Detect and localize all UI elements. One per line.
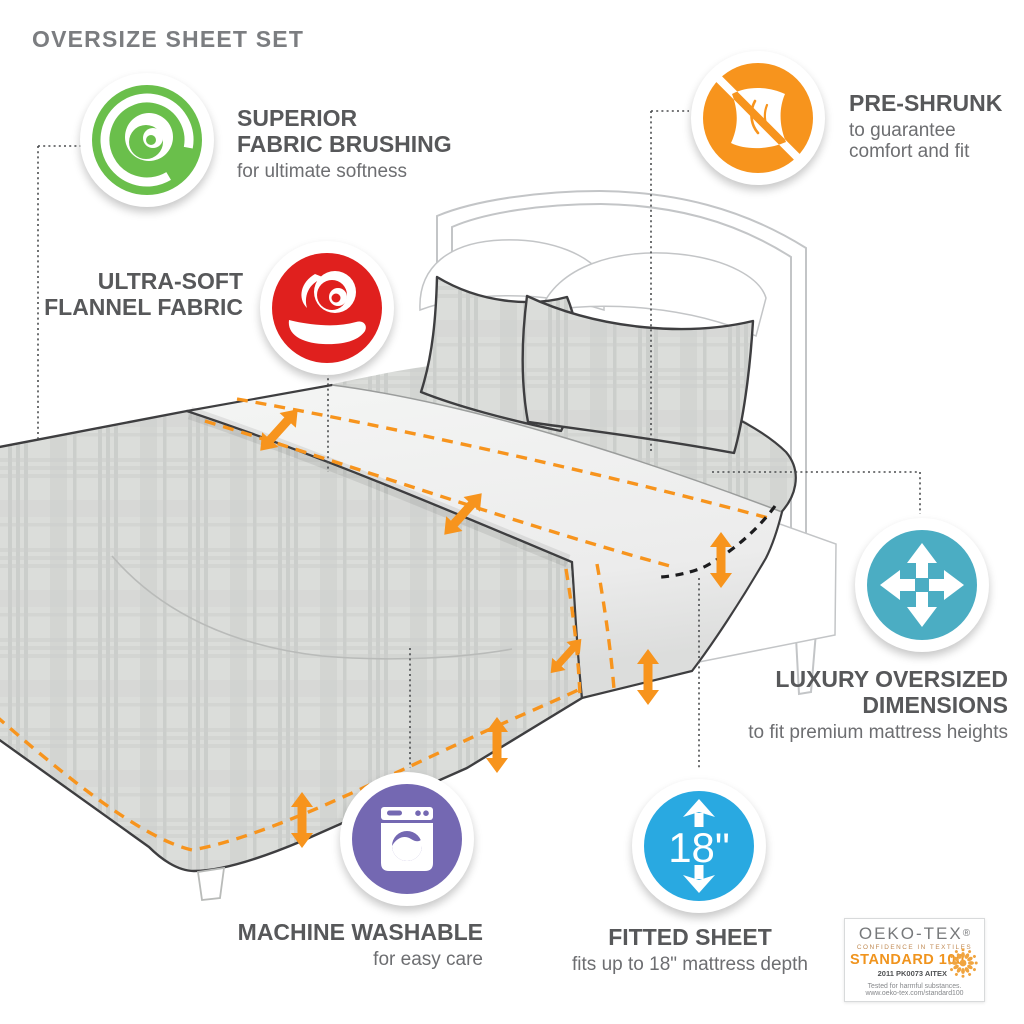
- feature-heading: FITTED SHEET: [550, 924, 830, 950]
- badge-superior-fabric-brushing: [80, 73, 214, 207]
- oversize-sheet-set-infographic: OVERSIZE SHEET SET: [0, 0, 1024, 1024]
- badge-luxury-oversized-dimensions: [855, 518, 989, 652]
- oeko-brand: OEKO-TEX®: [845, 925, 984, 942]
- registered-mark: ®: [963, 928, 970, 939]
- feature-caption: to fit premium mattress heights: [748, 722, 1008, 743]
- feature-caption: to guarantee: [849, 120, 1002, 141]
- feature-heading: LUXURY OVERSIZED: [748, 666, 1008, 692]
- feature-heading: PRE-SHRUNK: [849, 90, 1002, 116]
- feature-caption: for ultimate softness: [237, 161, 452, 182]
- hand-holding-fabric-icon: [272, 253, 382, 363]
- badge-depth-value: 18": [668, 824, 730, 871]
- oeko-license-number: 2011 PK0073 AITEX: [845, 969, 947, 978]
- badge-machine-washable: [340, 772, 474, 906]
- feature-heading: FABRIC BRUSHING: [237, 131, 452, 157]
- feature-heading: MACHINE WASHABLE: [238, 919, 483, 945]
- no-shrink-fabric-icon: [703, 63, 813, 173]
- feature-caption: for easy care: [238, 949, 483, 970]
- feature-heading: DIMENSIONS: [748, 692, 1008, 718]
- feature-heading: FLANNEL FABRIC: [44, 294, 243, 320]
- feature-luxury-oversized-dimensions: LUXURY OVERSIZED DIMENSIONS to fit premi…: [748, 666, 1008, 743]
- feature-caption: comfort and fit: [849, 141, 1002, 162]
- feature-ultra-soft-flannel: ULTRA-SOFT FLANNEL FABRIC: [44, 268, 243, 320]
- page-title: OVERSIZE SHEET SET: [32, 26, 304, 53]
- feature-machine-washable: MACHINE WASHABLE for easy care: [238, 919, 483, 970]
- expand-arrows-icon: [867, 530, 977, 640]
- oeko-url: www.oeko-tex.com/standard100: [851, 990, 979, 997]
- badge-pre-shrunk: [691, 51, 825, 185]
- oeko-flower-icon: [946, 946, 980, 980]
- feature-heading: SUPERIOR: [237, 105, 452, 131]
- feature-pre-shrunk: PRE-SHRUNK to guarantee comfort and fit: [849, 90, 1002, 162]
- feature-superior-fabric-brushing: SUPERIOR FABRIC BRUSHING for ultimate so…: [237, 105, 452, 182]
- wave-swirl-icon: [92, 85, 202, 195]
- bed-leg: [198, 868, 224, 900]
- badge-fitted-sheet: 18": [632, 779, 766, 913]
- oeko-brand-text: OEKO-TEX: [859, 924, 963, 943]
- feature-fitted-sheet: FITTED SHEET fits up to 18" mattress dep…: [550, 924, 830, 975]
- badge-ultra-soft-flannel: [260, 241, 394, 375]
- washing-machine-icon: [352, 784, 462, 894]
- feature-heading: ULTRA-SOFT: [44, 268, 243, 294]
- feature-caption: fits up to 18" mattress depth: [550, 954, 830, 975]
- oeko-tex-label: OEKO-TEX® CONFIDENCE IN TEXTILES STANDAR…: [844, 918, 985, 1002]
- oeko-tested-note: Tested for harmful substances.: [851, 983, 979, 990]
- mattress-depth-icon: 18": [644, 791, 754, 901]
